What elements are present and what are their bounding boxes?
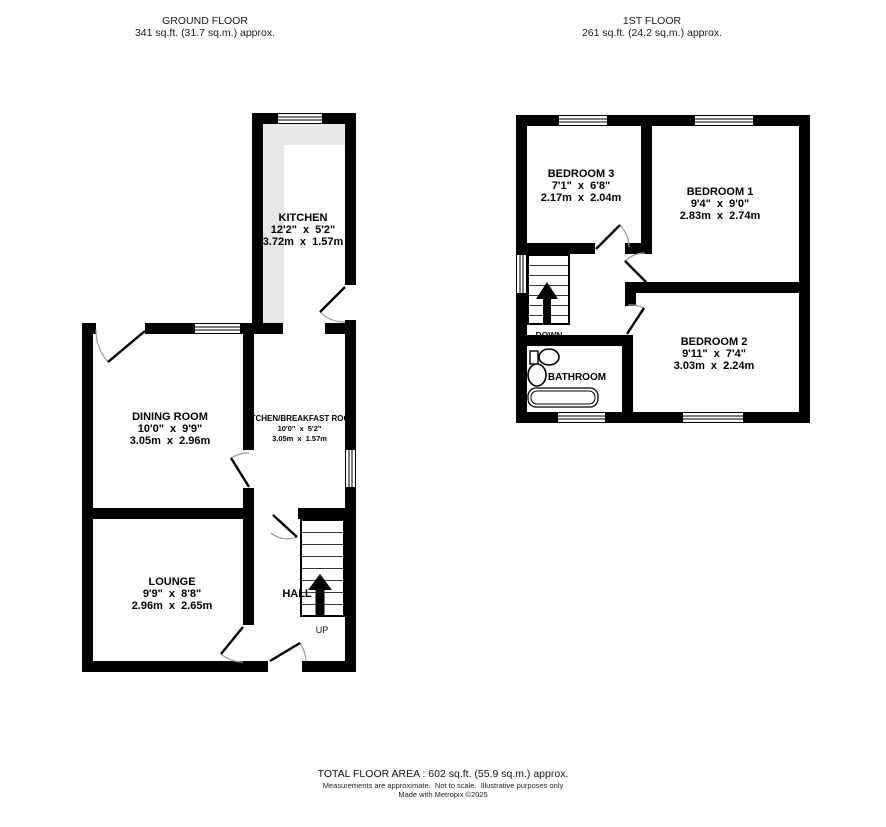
bedroom1-label: BEDROOM 1 9'4" x 9'0" 9'11" x 7'4" 2.83m…: [660, 186, 780, 222]
dining-room-window: [195, 323, 240, 334]
credit: Made with Metropix ©2025: [220, 790, 666, 799]
wall: [240, 323, 283, 334]
kitchen-label: KITCHEN 12'2" x 5'2" 3.72m x 1.57m: [238, 212, 368, 248]
total-floor-area: TOTAL FLOOR AREA : 602 sq.ft. (55.9 sq.m…: [220, 768, 666, 781]
wall: [625, 282, 636, 306]
bathroom-label: BATHROOM: [536, 372, 618, 384]
wall: [82, 661, 268, 672]
bedroom3-window: [559, 115, 607, 126]
breakfast-room-label: KITCHEN/BREAKFAST ROOM 10'0" x 5'2" 3.05…: [254, 414, 345, 443]
wall: [799, 115, 810, 423]
lounge-door: [221, 627, 243, 654]
room-size-metric: 2.17m x 2.04m: [520, 192, 642, 204]
room-size-imperial: 12'2" x 5'2": [238, 224, 368, 236]
room-name: DINING ROOM: [90, 411, 250, 423]
wall: [516, 335, 633, 346]
room-name: KITCHEN/BREAKFAST ROOM: [254, 414, 345, 424]
bathtub: [528, 388, 598, 407]
wall: [82, 323, 93, 672]
door-arc: [271, 533, 297, 539]
room-size-imperial: 10'0" x 5'2": [254, 424, 345, 434]
wall: [516, 293, 527, 423]
bedroom1-window: [695, 115, 753, 126]
room-size-imperial: 9'9" x 8'8": [92, 588, 252, 600]
wall: [302, 661, 356, 672]
breakfast-room-window: [345, 450, 356, 487]
wall: [622, 335, 633, 423]
wall: [345, 487, 356, 672]
first-floor-area: 261 sq.ft. (24.2 sq.m.) approx.: [517, 27, 787, 39]
room-name: BEDROOM 3: [520, 168, 642, 180]
wall: [625, 243, 652, 254]
wall: [345, 320, 356, 450]
landing-window: [516, 255, 527, 293]
wall: [516, 243, 595, 254]
front-door: [270, 643, 300, 661]
floorplan-ground: KITCHEN 12'2" x 5'2" 3.72m x 1.57m DININ…: [80, 110, 358, 675]
room-size-metric: 3.72m x 1.57m: [238, 236, 368, 248]
room-size-metric: 2.96m x 2.65m: [92, 600, 252, 612]
bedroom2-label: BEDROOM 2 9'11" x 7'4" 3.03m x 2.24m: [654, 336, 774, 372]
room-size-imperial: 7'1" x 6'8": [520, 180, 642, 192]
door-arc: [96, 330, 108, 362]
room-size-metric: 3.03m x 2.24m: [654, 360, 774, 372]
lounge-label: LOUNGE 9'9" x 8'8" 2.96m x 2.65m: [92, 576, 252, 612]
bedroom1-door: [625, 261, 646, 282]
wall: [516, 412, 558, 423]
dining-breakfast-door: [231, 458, 249, 487]
breakfast-room-label-clip: KITCHEN/BREAKFAST ROOM 10'0" x 5'2" 3.05…: [254, 334, 345, 508]
staircase-up: [300, 519, 345, 617]
wall: [298, 508, 345, 519]
first-floor-header: 1ST FLOOR 261 sq.ft. (24.2 sq.m.) approx…: [517, 15, 787, 39]
toilet: [539, 349, 559, 365]
door-arc: [300, 643, 306, 661]
hall-breakfast-door: [273, 515, 297, 537]
ground-floor-area: 341 sq.ft. (31.7 sq.m.) approx.: [70, 27, 340, 39]
disclaimer: Measurements are approximate. Not to sca…: [220, 781, 666, 790]
ground-floor-title: GROUND FLOOR: [70, 15, 340, 27]
toilet: [530, 351, 538, 364]
wall: [325, 323, 356, 334]
ground-floor-header: GROUND FLOOR 341 sq.ft. (31.7 sq.m.) app…: [70, 15, 340, 39]
room-name: KITCHEN: [238, 212, 368, 224]
door-arc: [231, 453, 249, 458]
bedroom2-window: [683, 412, 743, 423]
first-floor-title: 1ST FLOOR: [517, 15, 787, 27]
wall: [82, 508, 243, 519]
wall: [625, 282, 799, 293]
wall: [345, 113, 356, 285]
stairs-up-label: UP: [302, 624, 342, 636]
floorplan-first: DOWN BEDROOM 3 7'1" x 6'8" 2.17m x 2.04m…: [516, 115, 812, 425]
wall: [605, 412, 683, 423]
dining-room-label: DINING ROOM 10'0" x 9'9" 3.05m x 2.96m: [90, 411, 250, 447]
footer: TOTAL FLOOR AREA : 602 sq.ft. (55.9 sq.m…: [220, 768, 666, 799]
room-name: BEDROOM 1: [660, 186, 780, 198]
back-door: [108, 331, 145, 362]
wall: [145, 323, 195, 334]
room-size-metric: 3.05m x 1.57m: [254, 434, 345, 444]
kitchen-door: [320, 287, 345, 312]
hall-label: HALL: [267, 588, 327, 600]
kitchen-window: [278, 113, 322, 124]
room-size-imperial: 9'4" x 9'0": [660, 198, 780, 210]
bedroom3-label: BEDROOM 3 7'1" x 6'8" 2.17m x 2.04m: [520, 168, 642, 204]
room-size-metric: 2.83m x 2.74m: [660, 210, 780, 222]
wall: [641, 126, 652, 253]
room-size-imperial: 10'0" x 9'9": [90, 423, 250, 435]
bedroom2-door: [627, 308, 644, 334]
door-arc: [320, 312, 345, 322]
bedroom3-door: [596, 225, 620, 249]
door-arc: [625, 253, 645, 261]
wall: [607, 115, 695, 126]
room-name: BEDROOM 2: [654, 336, 774, 348]
bathroom-window: [558, 412, 605, 423]
bathtub: [531, 391, 595, 404]
room-size-imperial: 9'11" x 7'4": [654, 348, 774, 360]
staircase-down: [527, 254, 570, 325]
wall: [743, 412, 810, 423]
room-size-metric: 3.05m x 2.96m: [90, 435, 250, 447]
room-name: LOUNGE: [92, 576, 252, 588]
